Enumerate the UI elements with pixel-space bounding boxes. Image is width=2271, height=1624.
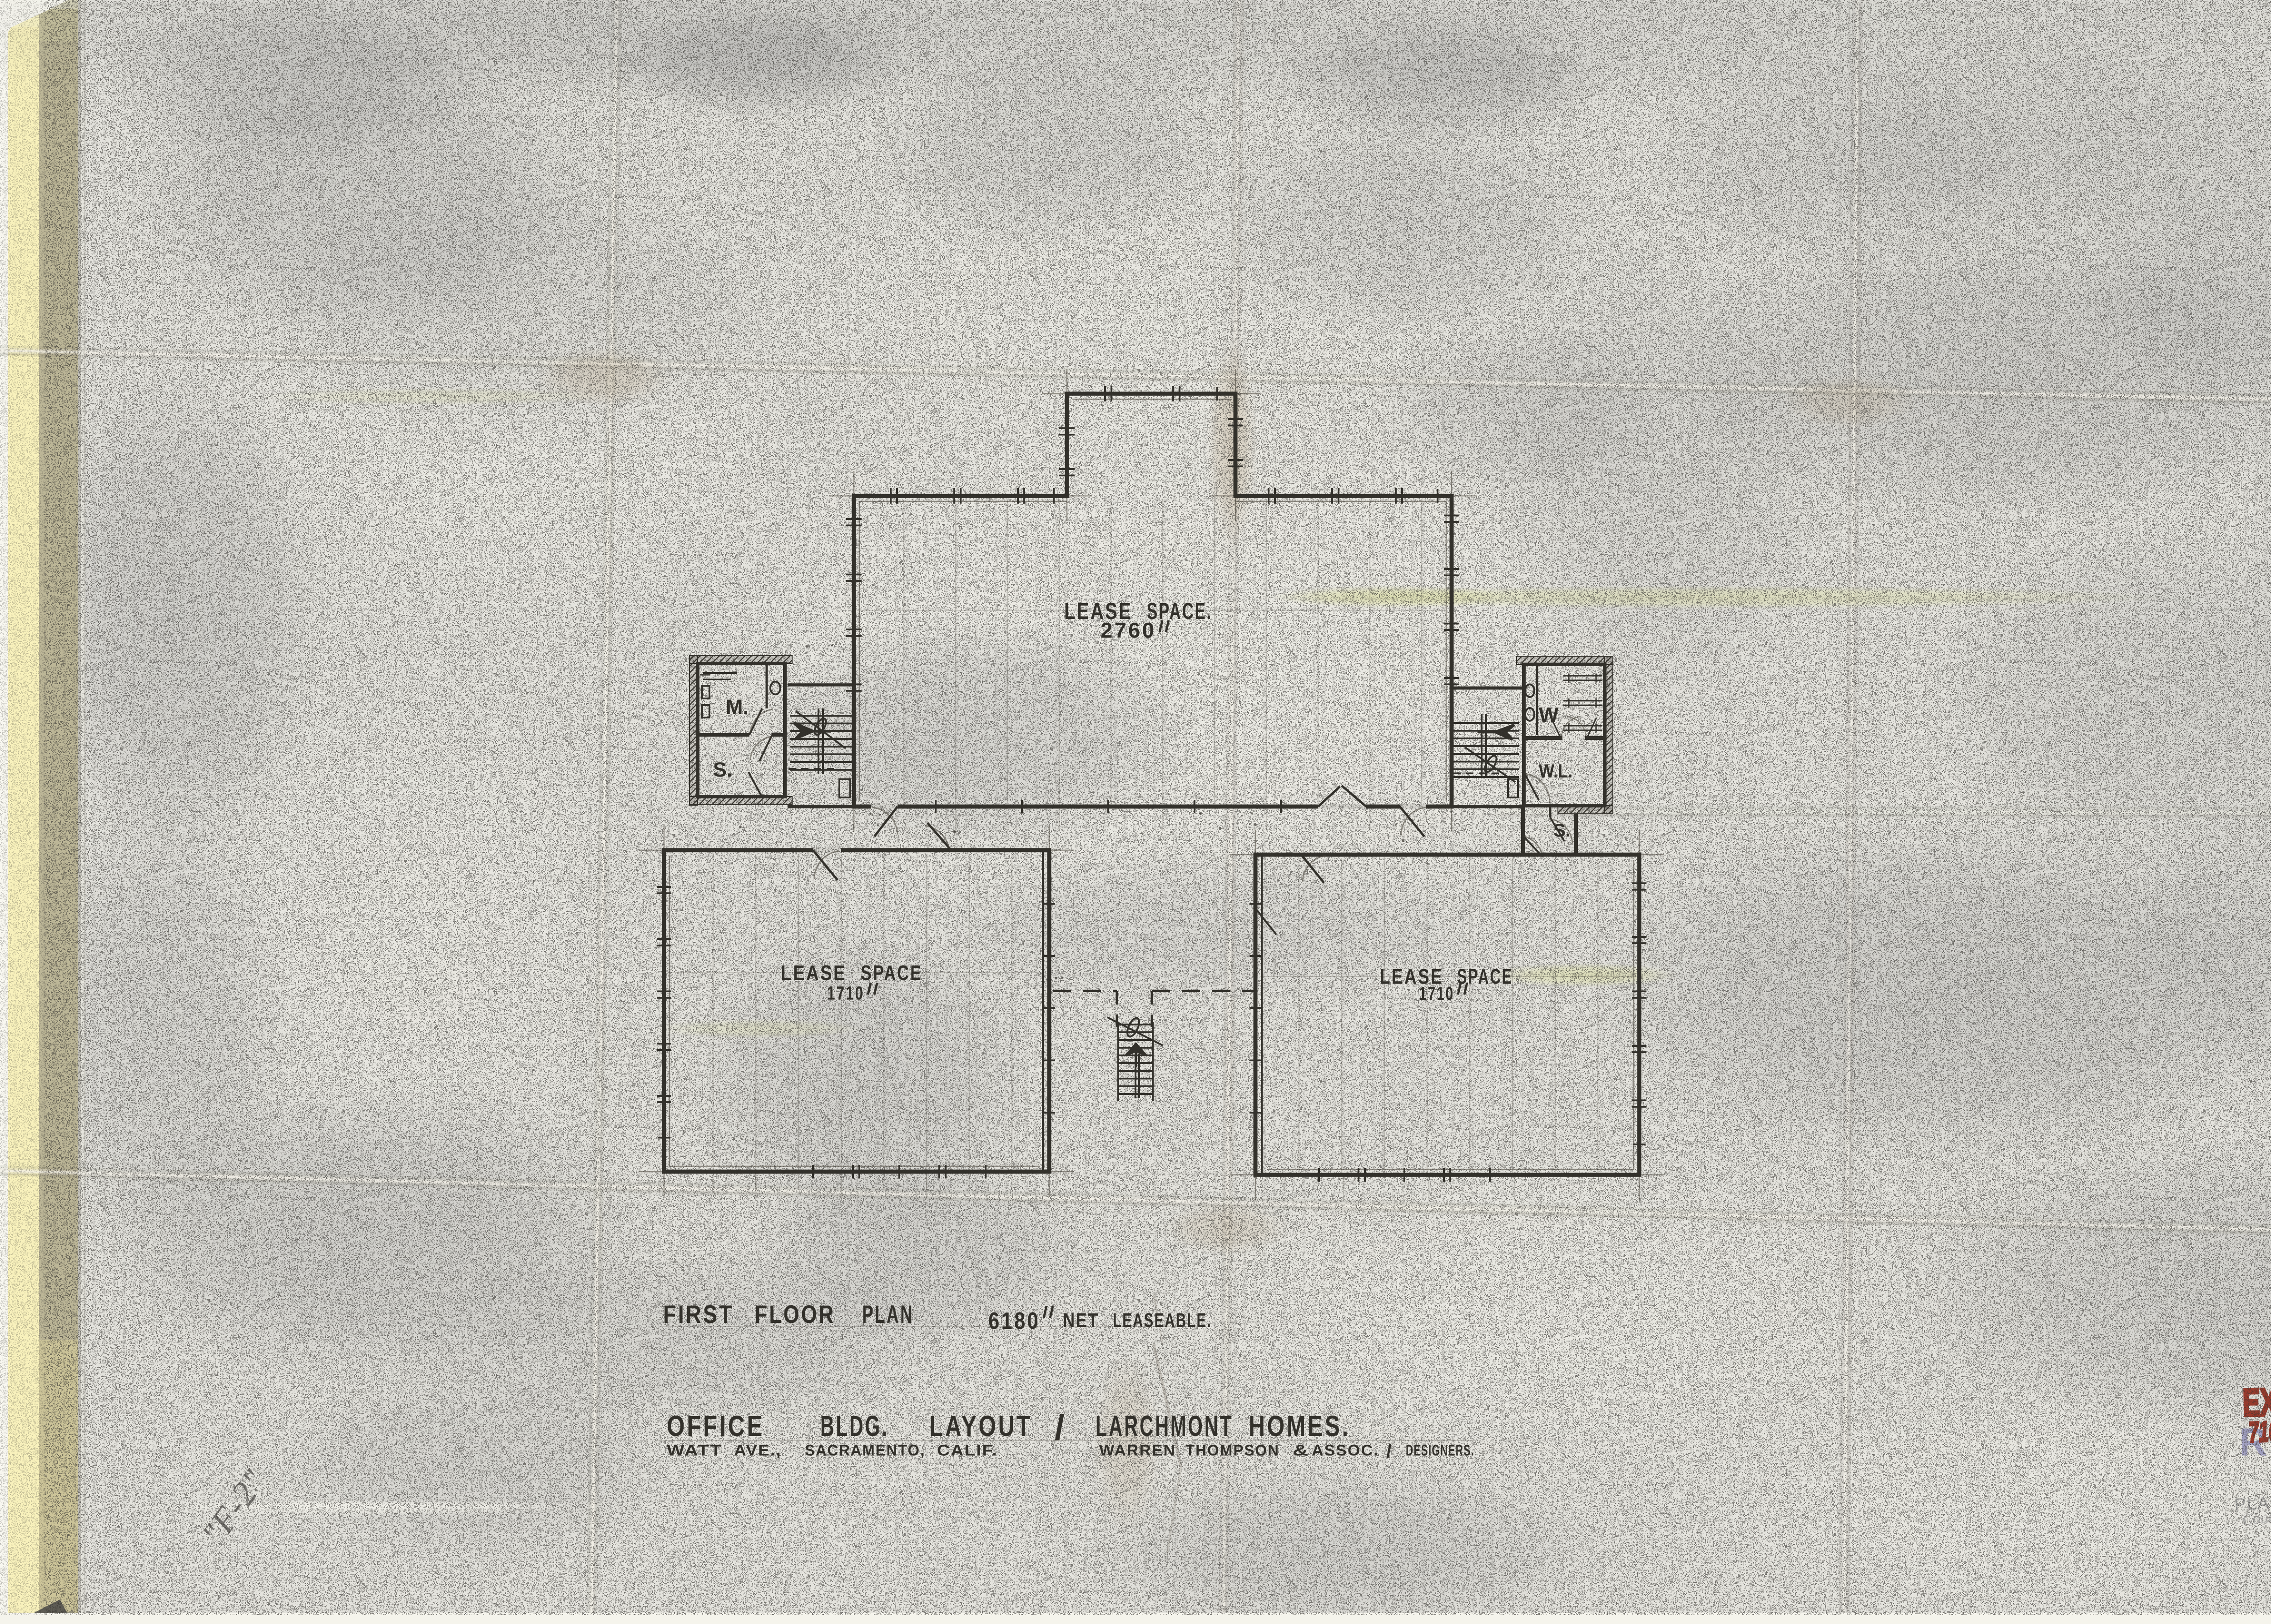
svg-text:SPACE: SPACE [1457, 965, 1513, 988]
svg-text:SPACE.: SPACE. [1147, 598, 1212, 624]
svg-text:SACRAMENTO,: SACRAMENTO, [805, 1442, 925, 1459]
svg-text:W.L.: W.L. [1539, 760, 1572, 782]
svg-text:FLOOR: FLOOR [755, 1300, 835, 1328]
svg-text:HOMES.: HOMES. [1249, 1410, 1350, 1442]
svg-text:SPACE: SPACE [861, 961, 922, 985]
svg-text:LAYOUT: LAYOUT [929, 1410, 1032, 1442]
svg-text:WARREN: WARREN [1099, 1442, 1176, 1459]
svg-text:S.: S. [1553, 821, 1571, 841]
svg-text:NET: NET [1063, 1309, 1099, 1332]
svg-text:M.: M. [726, 695, 749, 718]
svg-text:/: / [1386, 1441, 1392, 1462]
svg-text:S.: S. [713, 758, 733, 781]
svg-text:7100: 7100 [2248, 1414, 2271, 1449]
svg-text:ASSOC.: ASSOC. [1312, 1442, 1379, 1459]
svg-text:CALIF.: CALIF. [937, 1442, 998, 1459]
svg-text:BLDG.: BLDG. [820, 1410, 889, 1442]
svg-text:6180: 6180 [988, 1308, 1040, 1334]
svg-text:LEASE: LEASE [781, 961, 847, 985]
svg-text:&: & [1293, 1442, 1308, 1459]
svg-text:LEASEABLE.: LEASEABLE. [1113, 1309, 1212, 1332]
svg-text:AVE.,: AVE., [734, 1442, 782, 1459]
svg-text:THOMPSON: THOMPSON [1185, 1442, 1279, 1459]
svg-text:1710: 1710 [1419, 983, 1454, 1004]
svg-text:/: / [1055, 1407, 1065, 1447]
svg-text:DESIGNERS.: DESIGNERS. [1406, 1442, 1474, 1459]
svg-text:2760: 2760 [1101, 618, 1156, 642]
svg-text:PLAN: PLAN [862, 1300, 914, 1328]
svg-text:LARCHMONT: LARCHMONT [1096, 1410, 1233, 1442]
svg-text:W: W [1539, 703, 1559, 727]
svg-text:1710: 1710 [827, 982, 864, 1004]
svg-text:WATT: WATT [667, 1442, 723, 1459]
svg-text:OFFICE: OFFICE [667, 1410, 764, 1442]
svg-text:FIRST: FIRST [663, 1300, 734, 1328]
